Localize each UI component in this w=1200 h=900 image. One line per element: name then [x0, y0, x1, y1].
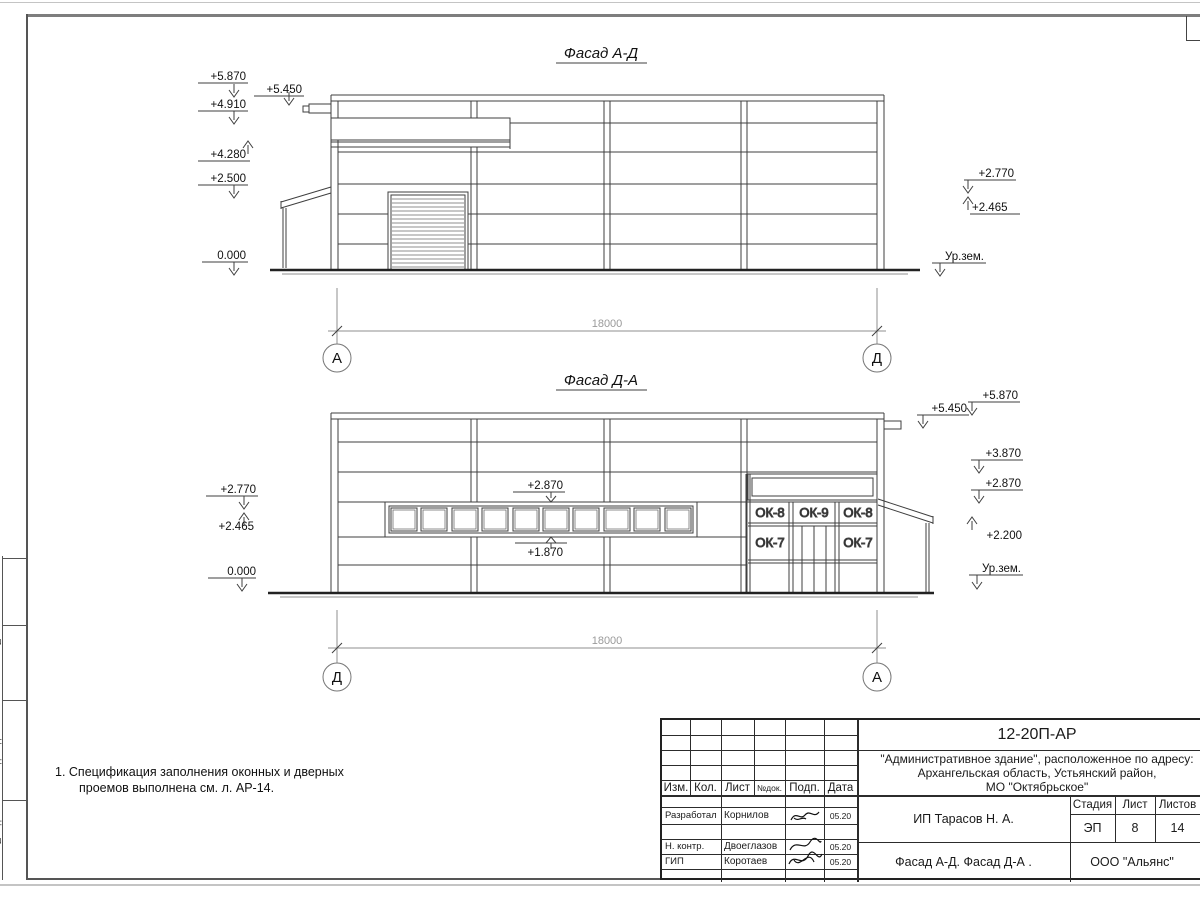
- note-line-2: проемов выполнена см. л. АР-14.: [79, 781, 274, 795]
- axis-label: Д: [332, 669, 342, 686]
- facade-da-title: Фасад Д-А: [564, 372, 638, 389]
- tb-project-description: "Административное здание", расположенное…: [857, 751, 1200, 795]
- svg-text:0.000: 0.000: [227, 566, 256, 578]
- elevation-mark-icon: [237, 578, 247, 591]
- elevation-mark-icon: [229, 185, 239, 198]
- tb-project-line1: "Административное здание", расположенное…: [880, 752, 1193, 766]
- elevation-mark-icon: [974, 460, 984, 473]
- svg-text:+5.450: +5.450: [267, 84, 303, 96]
- window-label-ok7: ОК-7: [843, 535, 872, 550]
- tb-role-ncontrol: Н. контр.: [665, 839, 720, 854]
- entrance-canopy: [331, 118, 510, 149]
- elevation-mark-icon: [239, 496, 249, 509]
- svg-text:+2.465: +2.465: [972, 202, 1008, 214]
- facade-da-drawing: Фасад Д-А: [180, 370, 1060, 700]
- svg-text:+2.465: +2.465: [219, 521, 255, 533]
- axis-circle-left: Д: [323, 663, 351, 691]
- margin-label-podp: Подп. и дата: [0, 700, 9, 800]
- svg-text:+2.770: +2.770: [221, 484, 257, 496]
- margin-label-vzam: Взам. инв. №: [0, 625, 9, 700]
- tb-sheet-title: Фасад А-Д. Фасад Д-А .: [857, 842, 1070, 882]
- tb-header-ndok: №док.: [754, 780, 785, 795]
- tb-doc-number: 12-20П-АР: [857, 720, 1200, 750]
- paper-bottom-edge: [0, 884, 1200, 886]
- tb-date-developer: 05.20: [824, 807, 857, 824]
- frame-left: [26, 14, 28, 880]
- tb-sheet-value: 8: [1115, 814, 1155, 842]
- window-label-ok8: ОК-8: [755, 505, 784, 520]
- tb-name-developer: Корнилов: [724, 807, 784, 824]
- tb-sheets-header: Листов: [1155, 795, 1200, 814]
- tb-client: ИП Тарасов Н. А.: [857, 795, 1070, 842]
- svg-text:+4.910: +4.910: [211, 99, 247, 111]
- left-porch: [281, 187, 331, 268]
- note-line-1: 1. Спецификация заполнения оконных и две…: [55, 765, 344, 779]
- roller-door: [388, 192, 468, 270]
- tb-sheet-header: Лист: [1115, 795, 1155, 814]
- svg-text:+2.500: +2.500: [211, 173, 247, 185]
- dimension-line: 18000: [328, 288, 886, 344]
- svg-text:+3.870: +3.870: [986, 448, 1022, 460]
- ground-line: [268, 593, 934, 597]
- dimension-value: 18000: [592, 318, 623, 330]
- window-label-ok8: ОК-8: [843, 505, 872, 520]
- window-label-ok7: ОК-7: [755, 535, 784, 550]
- margin-label-inv: Инв. № подл.: [0, 800, 9, 878]
- roof-protrusion-left: [303, 104, 331, 113]
- tb-header-kol: Кол.: [690, 780, 721, 795]
- svg-text:+2.870: +2.870: [528, 480, 564, 492]
- title-block: Изм. Кол. Лист №док. Подп. Дата Разработ…: [660, 718, 1200, 880]
- axis-circle-left: А: [323, 344, 351, 372]
- drawing-sheet: Взам. инв. № Подп. и дата Инв. № подл. Ф…: [0, 0, 1200, 900]
- tb-stage-value: ЭП: [1070, 814, 1115, 842]
- tb-date-ncontrol: 05.20: [824, 839, 857, 854]
- svg-text:0.000: 0.000: [217, 250, 246, 262]
- elevation-mark-icon: [967, 402, 977, 415]
- svg-text:+1.870: +1.870: [528, 547, 564, 559]
- svg-text:+2.770: +2.770: [979, 168, 1015, 180]
- elevation-mark-icon: [229, 111, 239, 124]
- elevation-mark-icon: [967, 517, 977, 530]
- elevation-mark-icon: [935, 263, 945, 276]
- elevation-marks-left: +2.770 +2.465 0.000: [206, 484, 258, 591]
- tb-name-ncontrol: Двоеглазов: [724, 839, 786, 854]
- roof-protrusion-right: [884, 421, 901, 429]
- elevation-mark-icon: [974, 490, 984, 503]
- signature-icon: [788, 808, 822, 824]
- right-porch: [878, 499, 933, 592]
- tb-role-developer: Разработал: [665, 807, 720, 824]
- signature-icon: [786, 836, 824, 872]
- window-label-ok9: ОК-9: [799, 505, 828, 520]
- tb-project-line3: МО "Октябрьское": [986, 780, 1088, 794]
- ground-level-label: Ур.зем.: [945, 251, 984, 263]
- ground-level-label: Ур.зем.: [982, 563, 1021, 575]
- corner-stamp-box: [1186, 16, 1200, 41]
- elevation-mark-icon: [972, 575, 982, 589]
- tb-name-gip: Коротаев: [724, 854, 786, 869]
- facade-ad-title: Фасад А-Д: [564, 45, 639, 62]
- dimension-line: 18000: [328, 610, 886, 663]
- axis-circle-right: А: [863, 663, 891, 691]
- tb-header-izm: Изм.: [662, 780, 690, 795]
- elevation-mark-icon: [229, 262, 239, 275]
- elevation-value: +5.870: [211, 71, 247, 83]
- tb-header-data: Дата: [824, 780, 857, 795]
- ground-line: [270, 270, 920, 274]
- elevation-mark-icon: [229, 84, 239, 97]
- tb-project-line2: Архангельская область, Устьянский район,: [918, 766, 1157, 780]
- paper-top-edge: [0, 2, 1200, 3]
- facade-ad-drawing: Фасад А-Д: [180, 40, 1060, 375]
- tb-header-list: Лист: [721, 780, 754, 795]
- dimension-value: 18000: [592, 635, 623, 647]
- tb-header-podp: Подп.: [785, 780, 824, 795]
- svg-text:+5.870: +5.870: [983, 390, 1019, 402]
- axis-circle-right: Д: [863, 344, 891, 372]
- elevation-mark-icon: [963, 180, 973, 193]
- ribbon-windows: [385, 502, 697, 537]
- tb-company: ООО "Альянс": [1070, 842, 1194, 882]
- elevation-marks-right: +5.450 +5.870 +3.870 +2.870 +2.200 Ур.зе…: [917, 390, 1023, 589]
- svg-text:+2.870: +2.870: [986, 478, 1022, 490]
- elevation-marks-right: +2.770 +2.465 Ур.зем.: [932, 168, 1020, 276]
- tb-role-gip: ГИП: [665, 854, 720, 869]
- tb-sheets-value: 14: [1155, 814, 1200, 842]
- elevation-mark-icon: [546, 492, 556, 502]
- storefront-glazing: ОК-8 ОК-9 ОК-8 ОК-7 ОК-7: [746, 474, 877, 593]
- frame-top: [26, 14, 1200, 17]
- svg-text:+2.200: +2.200: [987, 530, 1023, 542]
- axis-label: А: [872, 669, 882, 686]
- svg-text:+4.280: +4.280: [211, 149, 247, 161]
- axis-label: А: [332, 350, 342, 367]
- tb-date-gip: 05.20: [824, 854, 857, 869]
- svg-text:+5.450: +5.450: [932, 403, 968, 415]
- axis-label: Д: [872, 350, 882, 367]
- elevation-marks-left: +5.870 +5.450 +4.910 +4.280 +2.500 0.000: [198, 71, 304, 275]
- elevation-mark-icon: [918, 415, 928, 428]
- tb-stage-header: Стадия: [1070, 795, 1115, 814]
